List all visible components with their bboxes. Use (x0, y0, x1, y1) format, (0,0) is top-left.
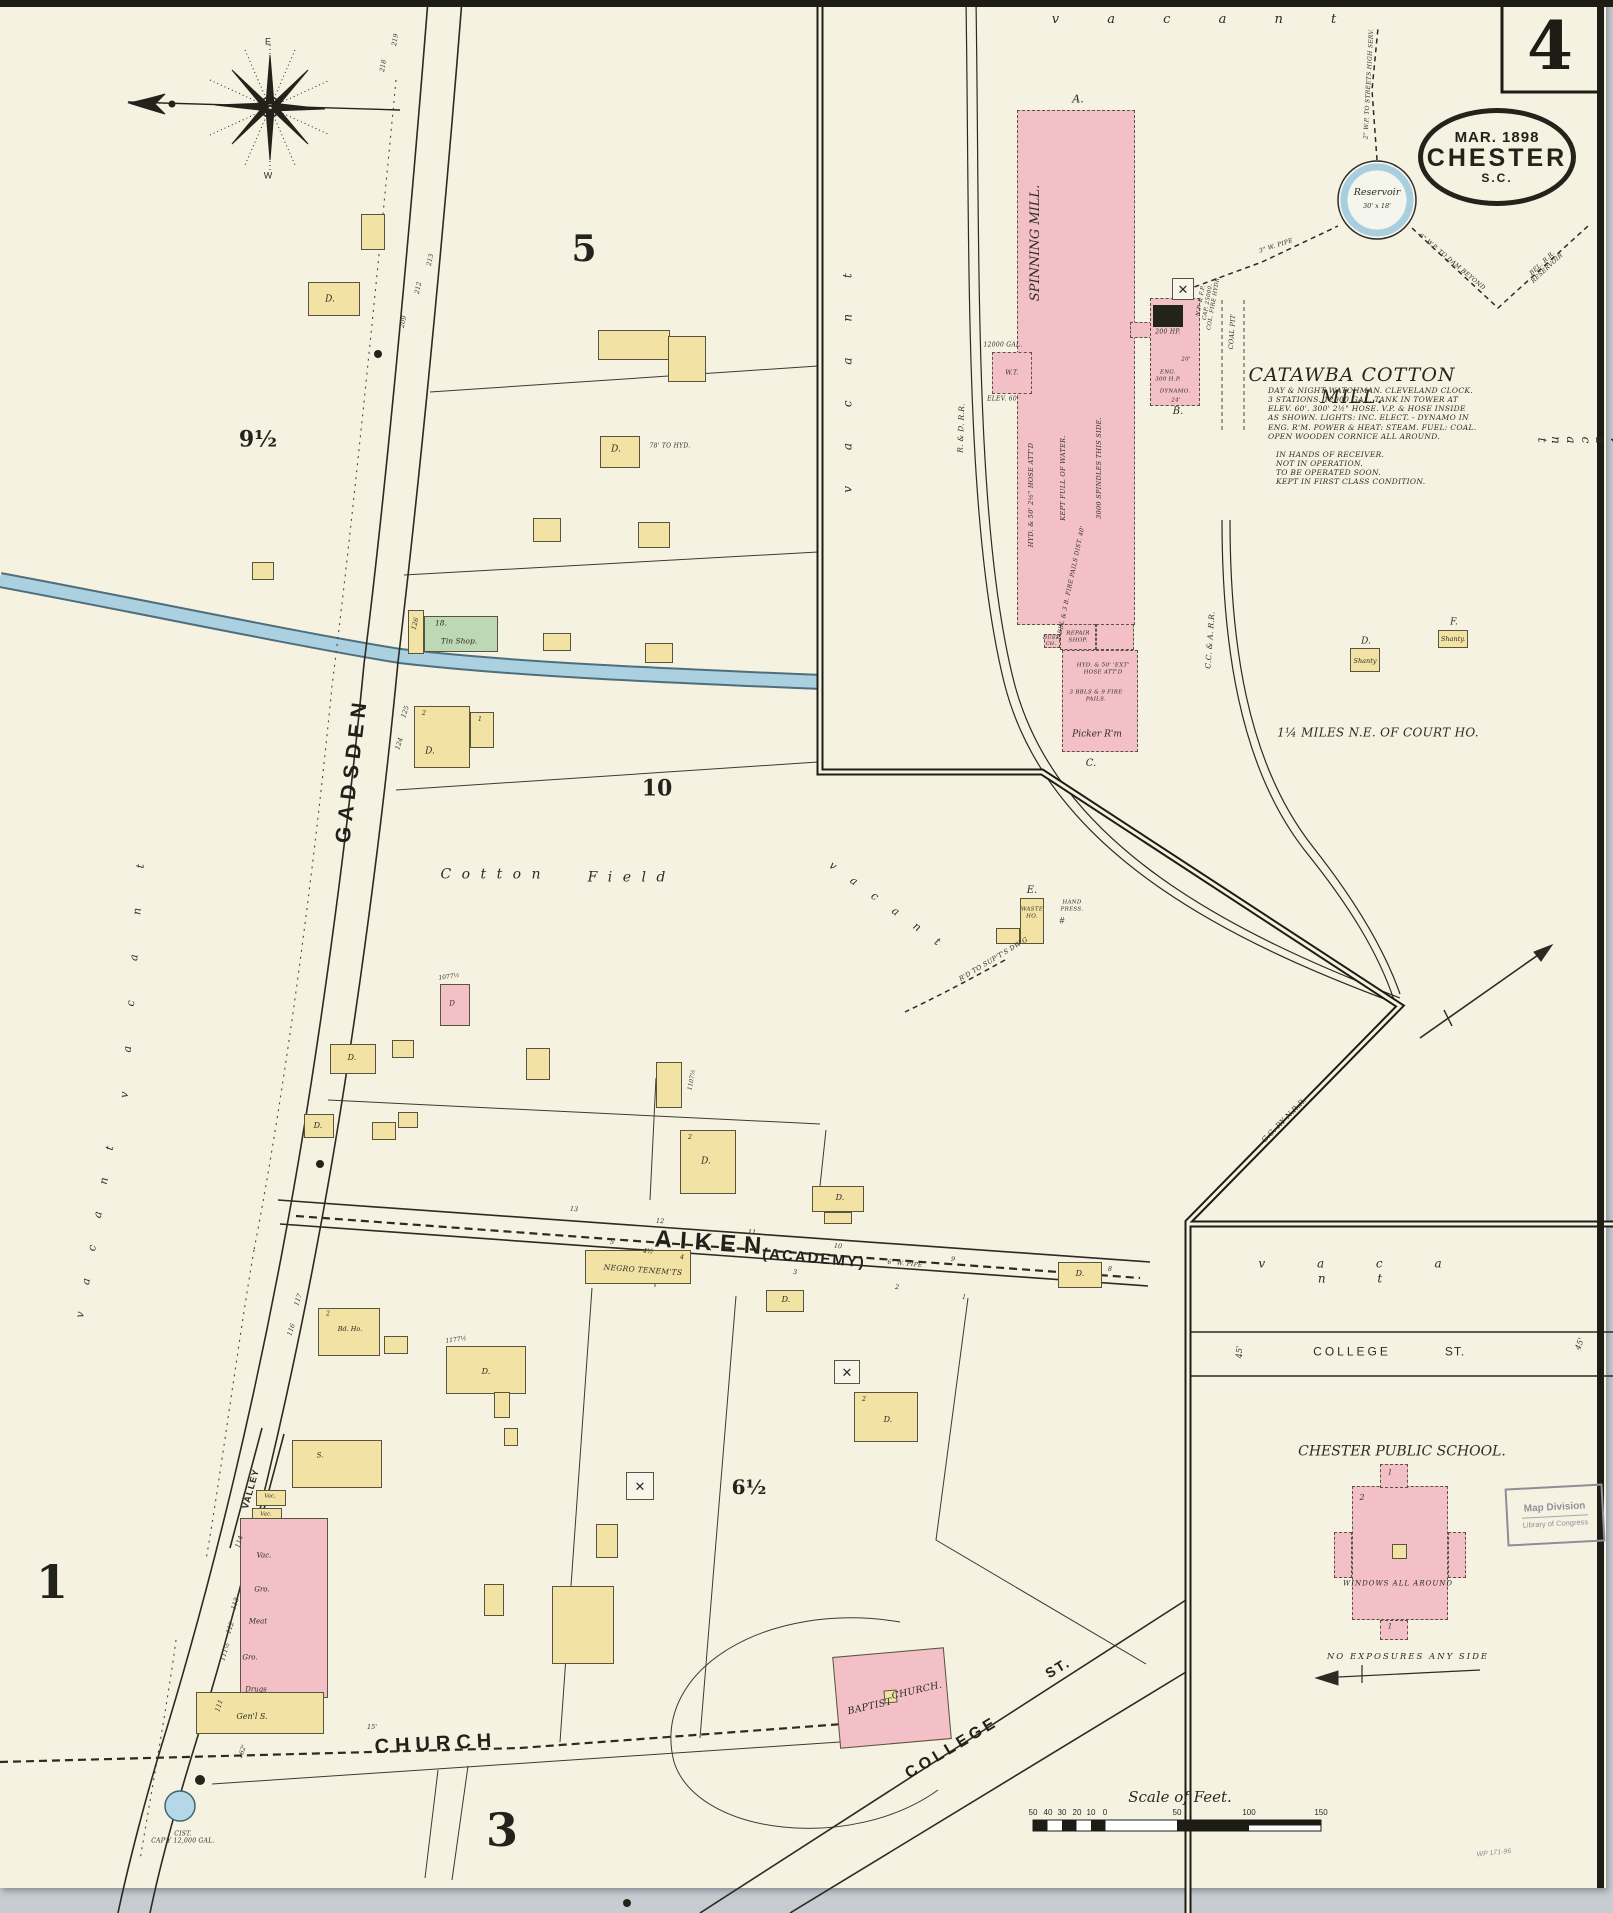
library-stamp: Map Division Library of Congress (1505, 1483, 1606, 1546)
district-10: 10 (642, 776, 673, 803)
map-label: D. (425, 747, 435, 758)
map-label: HYD. & 50' 'EXT' HOSE ATT'D (1077, 662, 1129, 675)
map-label: COAL PIT (1228, 314, 1238, 350)
map-label: Gro. (242, 1654, 257, 1663)
map-label: 3" W. PIPE (1258, 237, 1294, 255)
map-label: 218 (379, 59, 389, 73)
map-label: 112 (225, 1621, 236, 1635)
map-label: 2 (326, 1310, 330, 1317)
map-label: 8 (1108, 1266, 1112, 1274)
map-label: 10 (834, 1243, 843, 1251)
map-date: MAR. 1898 (1455, 130, 1540, 146)
map-label: 111½ (219, 1642, 232, 1662)
map-label: D (449, 1000, 455, 1009)
map-label: 2 (422, 710, 426, 718)
scale-tick: 100 (1242, 1808, 1255, 1817)
map-label: 124 (394, 737, 405, 751)
map-label: 2 (1359, 1493, 1364, 1503)
map-label: HYD. & 50' 2½" HOSE ATT'D (1028, 443, 1036, 547)
vacant-right-edge: v a c a n t (1534, 436, 1613, 484)
district-5: 5 (571, 228, 596, 272)
map-label: D. (782, 1295, 791, 1305)
map-label: D. (314, 1121, 323, 1131)
map-label: 6" W.P. TO DAM BEYOND (1417, 232, 1486, 292)
map-label: 6" W. PIPE (887, 1259, 923, 1269)
water-tank-label: W.T. (1005, 369, 1018, 376)
map-label: 18. (435, 618, 447, 627)
map-label: D. (611, 445, 621, 456)
map-label: 3 BBLS & 9 FIRE PAILS. (1069, 689, 1122, 702)
map-label: 212 (414, 281, 424, 295)
map-label: D. (701, 1157, 711, 1168)
map-label: HAND PRESS. (1061, 899, 1084, 912)
map-label: 213 (426, 253, 436, 267)
picker-room-label: Picker R'm (1072, 730, 1122, 741)
map-label: 1077½ (438, 972, 460, 982)
map-label: D. (482, 1367, 491, 1377)
map-label: 20' (1181, 357, 1190, 364)
map-label: 3 (793, 1269, 798, 1277)
sanborn-map-sheet: ✕✕✕ v a c a n tv a c a n tv a c a n tv a… (0, 0, 1613, 1913)
cistern-label: CIST. CAP'Y 12,000 GAL. (151, 1831, 215, 1846)
waste-house-label: WASTE HO. (1021, 906, 1043, 919)
college-street-st: ST. (1042, 1654, 1073, 1682)
map-label: D. (884, 1415, 893, 1425)
map-label: 113 (230, 1597, 241, 1611)
map-label: Vac. (257, 1552, 272, 1561)
vacant-mill-west: v a c a n t (841, 257, 856, 492)
map-label: 219 (391, 33, 401, 47)
map-label: 116 (286, 1323, 297, 1337)
map-label: 1 (1388, 1623, 1392, 1632)
railroad-cca-label: C.C. & A. R.R. (1203, 611, 1216, 669)
mill-notes-2: IN HANDS OF RECEIVER. NOT IN OPERATION. … (1276, 450, 1425, 487)
map-label: 200 HP. (1155, 328, 1180, 335)
map-label: D. (348, 1053, 357, 1063)
map-label: 45' (1235, 1346, 1245, 1358)
map-label: Shanty (1354, 658, 1377, 666)
scale-tick: 20 (1073, 1808, 1082, 1817)
district-9half: 9½ (239, 427, 277, 454)
map-label: 15' (367, 1724, 377, 1732)
map-label: 12 (656, 1218, 665, 1226)
tin-shop-label: Tin Shop. (441, 636, 477, 645)
map-label: 2" W.P. TO STREETS HIGH SERV. (1362, 29, 1375, 140)
scale-tick: 30 (1058, 1808, 1067, 1817)
vacant-west-lower: v a c a n t (73, 1133, 119, 1319)
map-label: Gro. (254, 1586, 269, 1595)
map-label: REPAIR SHOP. (1066, 630, 1089, 643)
sheet-number: 4 (1502, 2, 1598, 90)
map-label: 2 (895, 1284, 900, 1292)
map-label: R'D TO SUP'T'S DW'G (958, 936, 1030, 983)
scale-tick: 10 (1087, 1808, 1096, 1817)
map-label: Meat (249, 1618, 267, 1627)
baptist-church-label-1: BAPTIST (847, 1696, 894, 1717)
map-label: D. (836, 1193, 845, 1203)
map-label: N.P. & F.P. CAP. 25000. COL. FIRE HYDR. (1193, 273, 1222, 331)
spinning-mill-label: SPINNING MILL. (1028, 185, 1044, 301)
cotton-field-2: F i e l d (588, 869, 669, 886)
shanty-d-label: D. (1361, 637, 1371, 648)
map-label: 125 (400, 705, 411, 719)
college-street-label: COLLEGE (902, 1713, 1002, 1784)
map-city: CHESTER (1427, 145, 1567, 171)
scale-tick: 0 (1103, 1808, 1107, 1817)
map-label: Shanty. (1441, 636, 1465, 644)
map-label: ELEV. 60' (987, 395, 1019, 402)
map-label: 1107½ (687, 1069, 698, 1091)
map-label: 1 (962, 1294, 967, 1302)
scale-tick: 40 (1044, 1808, 1053, 1817)
general-store-label: Gen'l S. (236, 1712, 267, 1722)
railroad-gc-label: G.C. RY N.R.R. (1260, 1096, 1309, 1145)
map-label: 1 (478, 716, 482, 724)
map-label: ENG. 300 H.P. (1155, 369, 1181, 382)
school-windows-note: WINDOWS ALL AROUND (1343, 1580, 1453, 1589)
college-panel-st: ST. (1445, 1345, 1465, 1360)
vacant-west-upper: v a c a n t (118, 846, 149, 1099)
map-label: 24' (1171, 398, 1180, 405)
vacant-mill-se: v a c a n t (826, 859, 949, 954)
map-label: Vac. (264, 1494, 276, 1501)
stamp-line-1: Map Division (1524, 1500, 1586, 1514)
map-label: 126 (411, 617, 422, 631)
map-label: 162' (237, 1744, 249, 1760)
map-label: 2 (862, 1396, 866, 1404)
map-label: 9 (951, 1256, 956, 1264)
map-label: DUST CH. (1043, 635, 1059, 647)
school-exposures-note: NO EXPOSURES ANY SIDE (1327, 1652, 1489, 1662)
compass-e: E (265, 37, 271, 48)
valley-street-label: VALLEY (240, 1468, 262, 1510)
district-6half: 6½ (732, 1475, 767, 1499)
bldg-c-label: C. (1086, 758, 1096, 770)
map-label: 2 (688, 1134, 692, 1142)
church-street-label: CHURCH (374, 1729, 498, 1760)
title-oval: MAR. 1898 CHESTER S.C. (1418, 108, 1576, 206)
scale-tick: 50 (1029, 1808, 1038, 1817)
map-label: D. (325, 295, 335, 306)
scale-tick: 150 (1314, 1808, 1327, 1817)
compass-w: W (264, 171, 273, 182)
academy-street-label: (ACADEMY) (761, 1245, 866, 1272)
district-1: 1 (36, 1554, 68, 1610)
map-label: D. (1076, 1269, 1085, 1279)
map-label: 111 (214, 1699, 225, 1713)
map-label: DYNAMO. (1160, 389, 1191, 396)
map-label: S. (317, 1452, 324, 1461)
stamp-line-2: Library of Congress (1522, 1514, 1588, 1529)
pencil-note: WP 171-96 (1476, 1848, 1511, 1860)
map-label: 117 (293, 1293, 304, 1307)
bldg-a-label: A. (1072, 92, 1083, 105)
map-label: 45' (1573, 1337, 1586, 1352)
map-label: 1177½ (445, 1335, 467, 1345)
map-label: 78' TO HYD. (649, 442, 690, 449)
map-label: 12000 GAL. (983, 341, 1022, 348)
map-label: 11 (748, 1229, 757, 1237)
map-label: 114 (234, 1535, 245, 1549)
scale-tick: 50 (1173, 1808, 1182, 1817)
map-label: KEPT FULL OF WATER. (1060, 435, 1068, 520)
map-label: 13 (570, 1206, 579, 1214)
map-label: Vac. (260, 1512, 272, 1519)
map-label: 1 BBL & 3 B. FIRE PAILS DIST. 40' (1055, 525, 1086, 641)
map-label: Bd. Ho. (338, 1326, 363, 1334)
shanty-f-label: F. (1450, 618, 1458, 629)
baptist-church-label-2: CHURCH. (891, 1680, 944, 1703)
map-label: BEL. R.R. RESERVOIR (1515, 237, 1575, 294)
map-label: 1 (1388, 1469, 1392, 1478)
map-label: 5 (610, 1239, 615, 1247)
reservoir-label: Reservoir (1354, 187, 1400, 199)
railroad-rd-label: R. & D. R.R. (956, 403, 967, 453)
college-panel-label: COLLEGE (1313, 1345, 1391, 1360)
district-3: 3 (486, 1802, 518, 1858)
map-label: 30' x 18' (1363, 203, 1391, 211)
map-state: S.C. (1481, 172, 1512, 185)
negro-tenements-label: NEGRO TENEM'TS (603, 1263, 682, 1278)
map-label: 3000 SPINDLES THIS SIDE. (1096, 417, 1104, 519)
annotations-layer: v a c a n tv a c a n tv a c a n tv a c a… (0, 0, 1613, 1913)
map-label: # (1059, 916, 1064, 927)
mill-title: CATAWBA COTTON MILL. (1222, 364, 1482, 408)
school-title: CHESTER PUBLIC SCHOOL. (1298, 1443, 1506, 1460)
map-label: Drugs (245, 1686, 267, 1695)
map-label: 209 (399, 315, 409, 329)
gadsden-street-label: GADSDEN (330, 695, 373, 844)
bldg-b-label: B. (1173, 406, 1184, 418)
scale-title: Scale of Feet. (1100, 1788, 1260, 1806)
map-label: 4 (680, 1254, 685, 1262)
bldg-e-label: E. (1027, 885, 1037, 897)
cotton-field-1: C o t t o n (440, 866, 543, 883)
map-label: 4½ (643, 1248, 654, 1257)
vacant-top: v a c a n t (1052, 12, 1358, 28)
vacant-college-panel: v a c a n t (1237, 1256, 1488, 1285)
court-distance-note: 1¼ MILES N.E. OF COURT HO. (1277, 726, 1479, 741)
